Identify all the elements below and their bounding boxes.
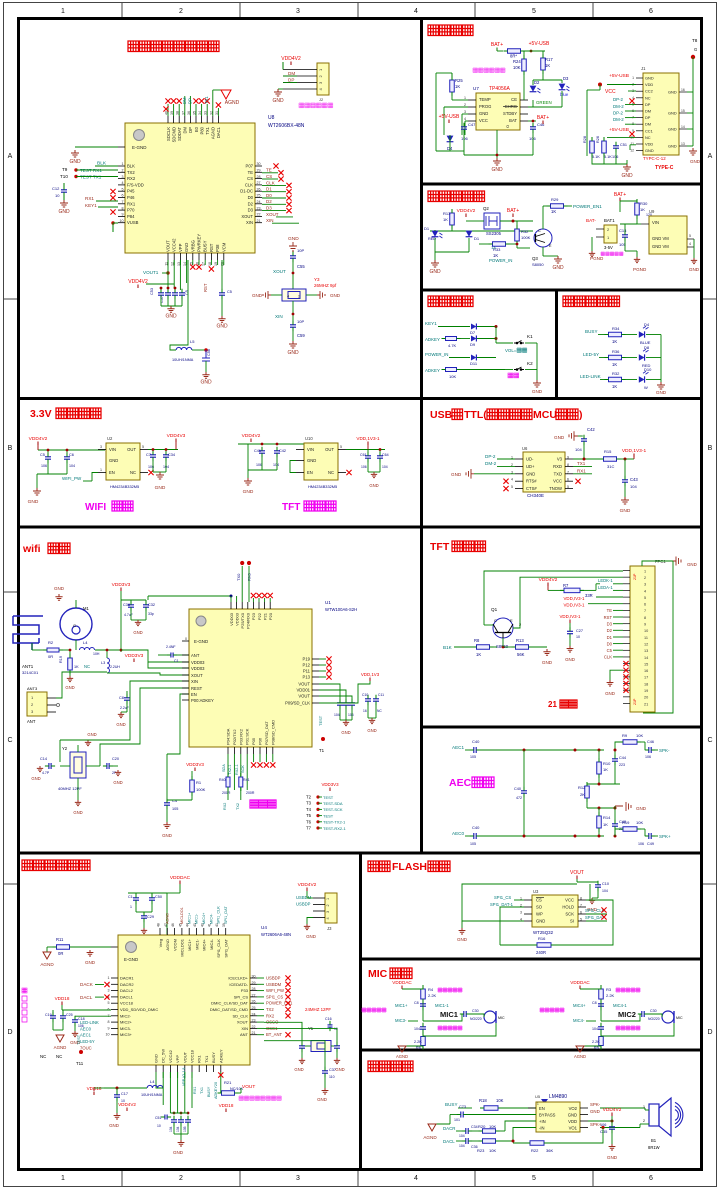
svg-text:ANT: ANT: [27, 719, 36, 724]
svg-text:1: 1: [130, 905, 132, 909]
svg-text:C34: C34: [471, 1125, 478, 1129]
svg-text:L4: L4: [83, 640, 88, 645]
svg-text:AEC1: AEC1: [80, 1033, 92, 1038]
svg-text:5: 5: [108, 1001, 110, 1005]
svg-text:10: 10: [576, 635, 580, 639]
svg-text:TE: TE: [266, 168, 272, 173]
svg-text:1K: 1K: [603, 767, 608, 772]
svg-text:TFT: TFT: [282, 502, 300, 513]
svg-text:10K: 10K: [449, 374, 456, 379]
svg-text:DM-2: DM-2: [613, 104, 624, 109]
svg-text:5: 5: [340, 445, 342, 449]
svg-text:T2: T2: [306, 795, 312, 800]
svg-text:1: 1: [643, 1105, 645, 1109]
svg-text:4: 4: [326, 917, 330, 919]
svg-text:106: 106: [348, 713, 354, 717]
svg-text:C40: C40: [472, 825, 480, 830]
svg-text:C55: C55: [297, 264, 305, 269]
svg-text:AGND: AGND: [165, 939, 170, 951]
svg-text:24: 24: [257, 200, 261, 204]
svg-text:31C: 31C: [607, 464, 614, 469]
svg-text:D3: D3: [607, 622, 613, 627]
svg-text:21: 21: [252, 1031, 256, 1035]
svg-text:8: 8: [644, 616, 646, 620]
svg-text:33p: 33p: [148, 612, 154, 616]
svg-text:C61: C61: [360, 453, 367, 457]
svg-text:R22: R22: [531, 1148, 539, 1153]
svg-text:C59: C59: [297, 333, 305, 338]
svg-text:EN: EN: [191, 692, 197, 697]
svg-text:VDD01: VDD01: [297, 688, 311, 693]
svg-text:RST: RST: [604, 615, 613, 620]
svg-text:P01:SCK: P01:SCK: [245, 728, 250, 745]
svg-text:3.3V: 3.3V: [30, 408, 52, 420]
svg-text:C29: C29: [147, 915, 154, 919]
svg-text:104: 104: [575, 447, 582, 452]
svg-text:16: 16: [644, 669, 648, 673]
svg-text:GND: GND: [306, 934, 316, 939]
svg-text:AEC0: AEC0: [452, 831, 464, 836]
svg-text:1K: 1K: [455, 84, 460, 89]
svg-text:ICECLKD+: ICECLKD+: [228, 976, 248, 981]
svg-text:1K: 1K: [640, 207, 645, 212]
svg-text:DP: DP: [288, 78, 294, 83]
svg-text:C38: C38: [123, 603, 130, 607]
svg-text:D2: D2: [607, 628, 613, 633]
svg-text:R19: R19: [59, 656, 63, 663]
svg-text:U2: U2: [107, 436, 113, 441]
svg-text:C51: C51: [155, 1116, 161, 1120]
svg-text:P05: P05: [251, 737, 256, 745]
svg-text:DACR: DACR: [443, 1126, 455, 1131]
svg-text:SI: SI: [570, 919, 574, 924]
svg-text:E-GND: E-GND: [132, 145, 147, 150]
svg-text:VOUT: VOUT: [298, 694, 310, 699]
svg-text:VDD3V3: VDD3V3: [112, 582, 131, 588]
svg-text:21: 21: [548, 700, 557, 709]
svg-text:A: A: [708, 153, 713, 160]
svg-text:TEST TX1: TEST TX1: [80, 175, 102, 180]
svg-text:7OUC: 7OUC: [80, 1045, 92, 1050]
svg-text:SPI1_CLK: SPI1_CLK: [217, 906, 221, 924]
svg-text:GND: GND: [620, 508, 631, 514]
svg-text:C: C: [7, 737, 12, 744]
svg-text:GND: GND: [341, 730, 350, 735]
svg-text:28: 28: [252, 987, 256, 991]
svg-text:VIN: VIN: [307, 447, 314, 452]
svg-text:C6: C6: [69, 453, 74, 457]
svg-text:GND: GND: [568, 1112, 577, 1117]
svg-text:VDD4V2: VDD4V2: [457, 208, 476, 214]
svg-text:VDD,IV3-1: VDD,IV3-1: [564, 603, 586, 608]
svg-text:GND: GND: [479, 111, 488, 116]
svg-text:3: 3: [122, 175, 124, 179]
svg-text:C73: C73: [459, 1105, 466, 1109]
svg-text:KEY1: KEY1: [85, 203, 97, 208]
svg-text:AGND: AGND: [40, 962, 54, 967]
svg-text:M1: M1: [83, 606, 89, 611]
svg-text:240R: 240R: [536, 950, 546, 955]
svg-text:GND: GND: [656, 390, 667, 395]
svg-text:P11: P11: [303, 669, 311, 674]
svg-text:22: 22: [252, 1025, 256, 1029]
svg-text:GND: GND: [109, 1123, 119, 1128]
svg-text:R15: R15: [604, 449, 612, 454]
svg-text:VRBG: VRBG: [190, 240, 195, 252]
svg-text:10K: 10K: [496, 1098, 504, 1103]
svg-text:C: C: [538, 229, 541, 233]
svg-text:TNOW: TNOW: [549, 486, 562, 491]
svg-text:27: 27: [257, 181, 261, 185]
svg-text:BYPASS: BYPASS: [539, 1112, 556, 1117]
svg-text:10: 10: [55, 193, 60, 198]
svg-text:NC: NC: [130, 470, 136, 475]
svg-text:C13: C13: [619, 228, 627, 233]
svg-text:MIC1+: MIC1+: [187, 912, 191, 924]
svg-text:J1: J1: [641, 66, 646, 71]
svg-text:R12: R12: [578, 785, 586, 790]
svg-text:15: 15: [681, 109, 685, 113]
svg-text:C10: C10: [602, 882, 609, 886]
svg-text:T7: T7: [306, 826, 312, 831]
svg-text:SCK: SCK: [241, 765, 245, 773]
svg-text:GND: GND: [451, 472, 462, 477]
svg-text:TFT: TFT: [430, 541, 450, 553]
svg-text:XIN: XIN: [266, 218, 274, 223]
svg-text:DP: DP: [645, 102, 651, 107]
svg-text:2: 2: [644, 576, 646, 580]
svg-text:P23: P23: [251, 612, 256, 620]
svg-text:106: 106: [600, 1123, 606, 1127]
svg-text:GND VM: GND VM: [652, 236, 669, 241]
svg-text:GND: GND: [165, 314, 177, 320]
svg-text:P07: P07: [246, 164, 254, 169]
svg-text:VDD4V2: VDD4V2: [603, 1107, 622, 1113]
svg-text:AGND: AGND: [225, 100, 240, 106]
svg-text:104: 104: [169, 1126, 173, 1132]
svg-text:LM4890: LM4890: [549, 1094, 567, 1100]
svg-text:4.7P: 4.7P: [42, 771, 50, 775]
svg-text:NC: NC: [377, 709, 382, 713]
svg-text:VDD4V2: VDD4V2: [281, 56, 301, 62]
svg-text:BUSY: BUSY: [585, 329, 598, 334]
svg-text:POWER_IN: POWER_IN: [489, 258, 512, 263]
svg-text:P19: P19: [303, 657, 311, 662]
svg-text:BAT: BAT: [509, 118, 517, 123]
svg-text:3: 3: [296, 8, 300, 15]
svg-text:2: 2: [326, 904, 330, 906]
svg-text:VDD18: VDD18: [219, 1103, 234, 1108]
svg-text:O: O: [505, 125, 510, 128]
svg-text:T8: T8: [692, 38, 698, 43]
svg-text:GND: GND: [552, 265, 564, 271]
svg-text:8R*: 8R*: [510, 54, 517, 59]
svg-text:U3: U3: [533, 889, 539, 894]
svg-text:C56: C56: [207, 349, 211, 356]
svg-text:S8050: S8050: [532, 262, 544, 267]
svg-text:GND: GND: [526, 471, 535, 476]
svg-text:GND: GND: [58, 209, 70, 215]
svg-text:GND: GND: [590, 1109, 600, 1114]
svg-text:1K: 1K: [551, 209, 556, 214]
svg-text:104: 104: [273, 463, 279, 467]
svg-text:STDBY: STDBY: [503, 111, 517, 116]
svg-text:46: 46: [171, 923, 175, 927]
svg-text:TX2-1: TX2-1: [228, 765, 232, 775]
svg-text:ANT1: ANT1: [22, 664, 34, 669]
svg-text:D1-DC: D1-DC: [240, 189, 253, 194]
svg-text:GND: GND: [690, 159, 701, 164]
svg-text:D2: D2: [266, 199, 272, 204]
svg-text:2.2K: 2.2K: [606, 993, 615, 998]
svg-text:TYPC-C-12: TYPC-C-12: [643, 156, 666, 161]
svg-text:EN: EN: [539, 1106, 545, 1111]
svg-text:VOUT: VOUT: [166, 240, 171, 252]
svg-text:WIFI_PW: WIFI_PW: [266, 988, 284, 993]
svg-text:REST: REST: [191, 686, 203, 691]
svg-text:TEST-RX2-1: TEST-RX2-1: [323, 826, 346, 831]
svg-text:VDD,1V3-1: VDD,1V3-1: [356, 436, 380, 441]
svg-text:C37: C37: [329, 1068, 336, 1072]
svg-text:1K: 1K: [476, 652, 481, 657]
svg-text:R5: R5: [594, 1046, 599, 1050]
svg-text:2.2UH: 2.2UH: [110, 665, 120, 669]
svg-text:101: 101: [454, 1118, 460, 1122]
svg-text:DP: DP: [188, 127, 193, 133]
svg-text:WT2606A6-48N: WT2606A6-48N: [261, 932, 291, 937]
svg-text:U5: U5: [535, 1094, 541, 1099]
svg-text:VCC18: VCC18: [190, 1049, 195, 1063]
svg-text:WT2606BX-48N: WT2606BX-48N: [268, 123, 305, 129]
svg-text:DP-2: DP-2: [613, 97, 624, 102]
svg-text:PROG: PROG: [479, 104, 491, 109]
svg-text:C8: C8: [414, 1001, 419, 1005]
svg-text:P21: P21: [262, 612, 267, 620]
svg-text:SPI1_DAT-1: SPI1_DAT-1: [490, 902, 514, 907]
svg-text:CS: CS: [536, 898, 542, 903]
svg-text:36K: 36K: [546, 1148, 553, 1153]
svg-text:20: 20: [644, 696, 648, 700]
svg-text:MIC4-: MIC4-: [209, 938, 214, 950]
svg-text:WP: WP: [536, 912, 543, 917]
svg-text:AGND: AGND: [211, 127, 216, 139]
svg-text:GND: GND: [457, 937, 468, 942]
svg-text:E-GND: E-GND: [194, 639, 208, 644]
svg-text:C34: C34: [168, 453, 175, 457]
svg-text:VCC: VCC: [605, 89, 616, 95]
svg-text:D3: D3: [266, 206, 272, 211]
svg-text:VO1: VO1: [569, 1125, 578, 1130]
svg-text:14: 14: [681, 125, 685, 129]
svg-text:RX1: RX1: [193, 1087, 197, 1094]
svg-text:DM: DM: [645, 109, 651, 114]
svg-text:DM: DM: [183, 126, 188, 133]
svg-text:D1: D1: [474, 236, 480, 241]
svg-text:D3: D3: [563, 76, 569, 81]
svg-text:C42: C42: [279, 449, 286, 453]
svg-text:XIN: XIN: [241, 1026, 248, 1031]
svg-text:GND: GND: [607, 1155, 618, 1160]
svg-text:0R: 0R: [48, 654, 53, 659]
svg-text:1K: 1K: [612, 384, 617, 389]
svg-text:R25: R25: [455, 78, 463, 83]
svg-text:GND: GND: [73, 810, 82, 815]
svg-text:TX2: TX2: [266, 1007, 274, 1012]
svg-text:G: G: [73, 623, 76, 628]
svg-text:DC_5W: DC_5W: [161, 1049, 166, 1063]
svg-text:TEST-SCK: TEST-SCK: [323, 807, 343, 812]
svg-text:8R1W: 8R1W: [648, 1145, 660, 1150]
svg-text:GND: GND: [491, 167, 503, 173]
svg-text:1: 1: [61, 1175, 65, 1182]
svg-text:2.2K: 2.2K: [414, 1040, 422, 1044]
svg-text:R34: R34: [612, 326, 620, 331]
svg-text:GREEN: GREEN: [536, 100, 552, 105]
svg-text:DM: DM: [645, 122, 651, 127]
svg-text:104: 104: [334, 713, 340, 717]
svg-text:LEDK-1: LEDK-1: [598, 578, 613, 583]
svg-text:10P: 10P: [297, 248, 304, 253]
svg-text:GND: GND: [689, 267, 700, 272]
svg-text:106: 106: [638, 842, 644, 846]
svg-text:5: 5: [689, 234, 691, 238]
svg-text:DACL2: DACL2: [120, 988, 134, 993]
svg-text:D2: D2: [534, 80, 540, 85]
svg-text:XOUT: XOUT: [266, 212, 279, 217]
svg-text:U9: U9: [649, 209, 655, 214]
svg-text:106: 106: [41, 464, 47, 468]
svg-text:D9: D9: [470, 342, 476, 347]
svg-text:2: 2: [179, 8, 183, 15]
svg-text:21: 21: [257, 219, 261, 223]
svg-text:AEC0: AEC0: [80, 1026, 92, 1031]
svg-text:MIC4-: MIC4-: [573, 1018, 585, 1023]
svg-text:MIC1+: MIC1+: [395, 1003, 408, 1008]
svg-text:104: 104: [382, 465, 388, 469]
svg-text:BAT-: BAT-: [586, 218, 596, 223]
svg-text:MIC2-: MIC2-: [120, 1013, 132, 1018]
svg-text:R1: R1: [196, 780, 202, 785]
svg-text:K1: K1: [527, 334, 533, 339]
svg-text:C53: C53: [150, 288, 154, 295]
svg-text:USB: USB: [430, 409, 453, 421]
svg-text:D2: D2: [248, 201, 254, 206]
svg-text:R10: R10: [603, 761, 611, 766]
svg-text:C42: C42: [587, 427, 595, 432]
svg-text:VOUT1: VOUT1: [143, 270, 159, 275]
svg-text:8: 8: [108, 1020, 110, 1024]
svg-text:106: 106: [361, 465, 367, 469]
svg-text:G: G: [694, 47, 697, 52]
svg-text:LEDA-1: LEDA-1: [598, 585, 613, 590]
svg-text:BAT+: BAT+: [537, 115, 549, 121]
svg-text:CLK: CLK: [604, 655, 612, 660]
svg-text:GND: GND: [565, 657, 575, 662]
svg-text:5.1K: 5.1K: [592, 155, 600, 159]
svg-text:P70: P70: [127, 208, 135, 213]
svg-text:P22: P22: [257, 612, 262, 620]
svg-text:2: 2: [643, 1119, 645, 1123]
svg-text:GND: GND: [317, 1097, 327, 1102]
svg-text:VOUT: VOUT: [570, 870, 584, 876]
svg-text:C17: C17: [121, 1092, 128, 1096]
svg-text:RST: RST: [203, 283, 208, 292]
svg-text:R29: R29: [551, 197, 559, 202]
svg-text:C35: C35: [600, 1129, 608, 1134]
svg-text:10K: 10K: [636, 820, 643, 825]
svg-text:DP: DP: [645, 115, 651, 120]
svg-text:15: 15: [644, 662, 648, 666]
svg-text:5: 5: [532, 8, 536, 15]
svg-text:DACL1: DACL1: [120, 994, 134, 999]
svg-text:C10: C10: [362, 693, 368, 697]
svg-text:MIC4+: MIC4+: [202, 938, 207, 951]
svg-text:VUSB: VUSB: [127, 220, 139, 225]
svg-text:3: 3: [100, 445, 102, 449]
svg-text:29: 29: [257, 169, 261, 173]
svg-text:EN: EN: [307, 470, 313, 475]
svg-text:VDD3V3: VDD3V3: [321, 782, 339, 787]
svg-text:GND: GND: [687, 562, 697, 567]
svg-text:+5V-USB: +5V-USB: [529, 41, 550, 47]
svg-text:D8: D8: [644, 345, 650, 350]
svg-text:26: 26: [252, 1000, 256, 1004]
svg-text:P20: P20: [268, 612, 273, 620]
svg-text:110: 110: [329, 1075, 335, 1079]
svg-text:P33: P33: [241, 988, 249, 993]
svg-text:NG/220: NG/220: [470, 1017, 482, 1021]
svg-text:GND: GND: [272, 98, 284, 104]
svg-text:D7: D7: [470, 330, 476, 335]
svg-text:TE: TE: [607, 608, 613, 613]
svg-text:GND: GND: [536, 919, 545, 924]
svg-text:R21: R21: [224, 1080, 232, 1085]
svg-text:U8: U8: [268, 115, 275, 121]
svg-text:P07/SD_DAT: P07/SD_DAT: [264, 721, 269, 745]
svg-text:D: D: [707, 1029, 712, 1036]
svg-text:SPK-: SPK-: [590, 1102, 601, 1107]
svg-text:106: 106: [256, 463, 262, 467]
svg-text:1K: 1K: [74, 665, 79, 669]
svg-text:Y3: Y3: [314, 277, 320, 282]
svg-text:DM-2: DM-2: [485, 461, 497, 466]
svg-text:GND: GND: [542, 660, 553, 665]
svg-text:6: 6: [108, 1008, 110, 1012]
svg-text:FPC1: FPC1: [655, 559, 666, 564]
svg-text:10P: 10P: [297, 319, 304, 324]
svg-text:GND: GND: [173, 1150, 184, 1155]
svg-text:BAT+: BAT+: [614, 192, 626, 198]
svg-text:3: 3: [108, 989, 110, 993]
svg-text:10: 10: [120, 219, 124, 223]
svg-text:R26: R26: [596, 136, 600, 143]
svg-text:AGND: AGND: [423, 1135, 437, 1140]
svg-text:7: 7: [122, 200, 124, 204]
svg-text:13: 13: [681, 142, 685, 146]
svg-text:TTL(: TTL(: [464, 409, 487, 421]
svg-text:C40: C40: [514, 787, 521, 791]
svg-text:16: 16: [363, 709, 367, 713]
svg-text:B: B: [8, 445, 13, 452]
svg-text:7: 7: [580, 904, 582, 908]
svg-text:CE: CE: [511, 97, 517, 102]
svg-text:CC1: CC1: [645, 128, 653, 133]
svg-text:0R: 0R: [58, 951, 63, 956]
svg-text:D1: D1: [424, 226, 430, 231]
svg-text:CTS#: CTS#: [526, 486, 537, 491]
svg-text:2.4NF: 2.4NF: [166, 645, 176, 649]
svg-text:MIC3-: MIC3-: [120, 1026, 132, 1031]
